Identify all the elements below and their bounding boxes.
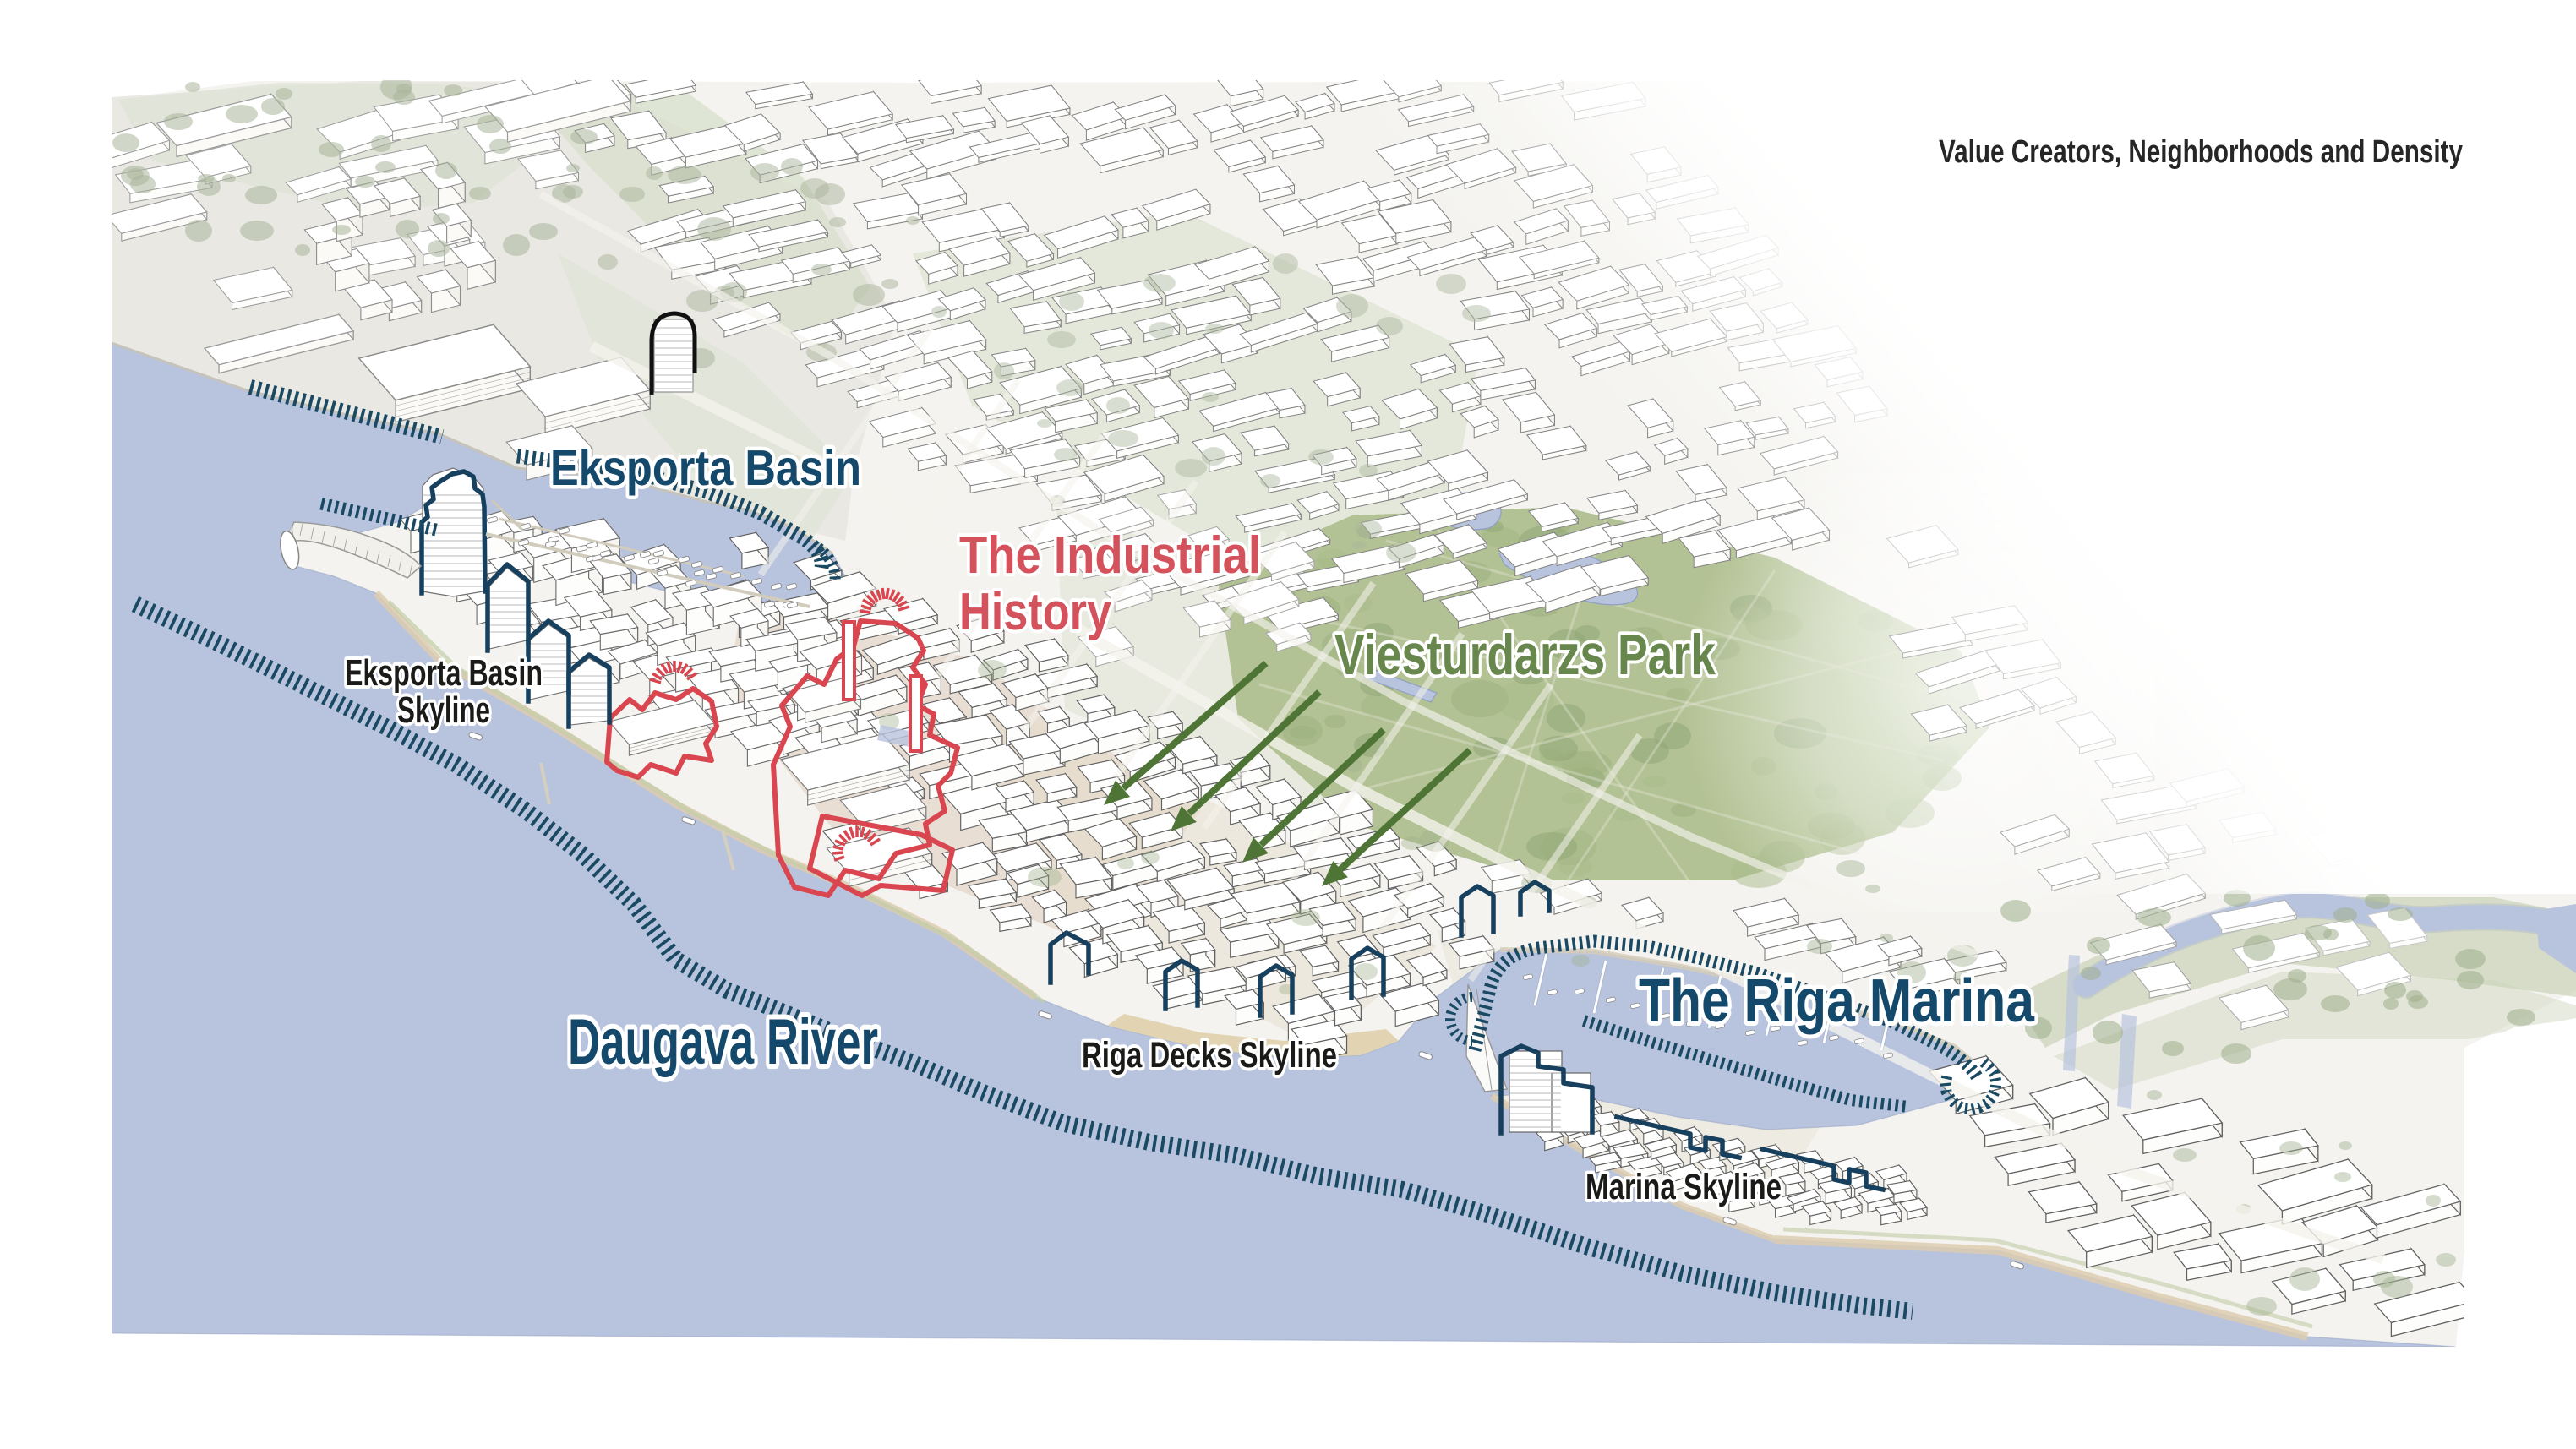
svg-text:Marina Skyline: Marina Skyline xyxy=(1585,1167,1782,1207)
svg-text:The Riga Marina: The Riga Marina xyxy=(1639,967,2035,1035)
svg-text:Value Creators, Neighborhoods: Value Creators, Neighborhoods and Densit… xyxy=(1939,134,2463,170)
svg-text:Daugava River: Daugava River xyxy=(568,1006,878,1078)
svg-text:History: History xyxy=(959,583,1111,641)
svg-text:The Industrial: The Industrial xyxy=(959,526,1261,585)
svg-text:Riga Decks Skyline: Riga Decks Skyline xyxy=(1082,1035,1337,1076)
svg-text:Eksporta Basin: Eksporta Basin xyxy=(550,440,861,496)
svg-text:Eksporta Basin: Eksporta Basin xyxy=(345,652,543,694)
svg-text:Skyline: Skyline xyxy=(397,689,490,731)
svg-text:Viesturdarzs Park: Viesturdarzs Park xyxy=(1334,623,1716,687)
